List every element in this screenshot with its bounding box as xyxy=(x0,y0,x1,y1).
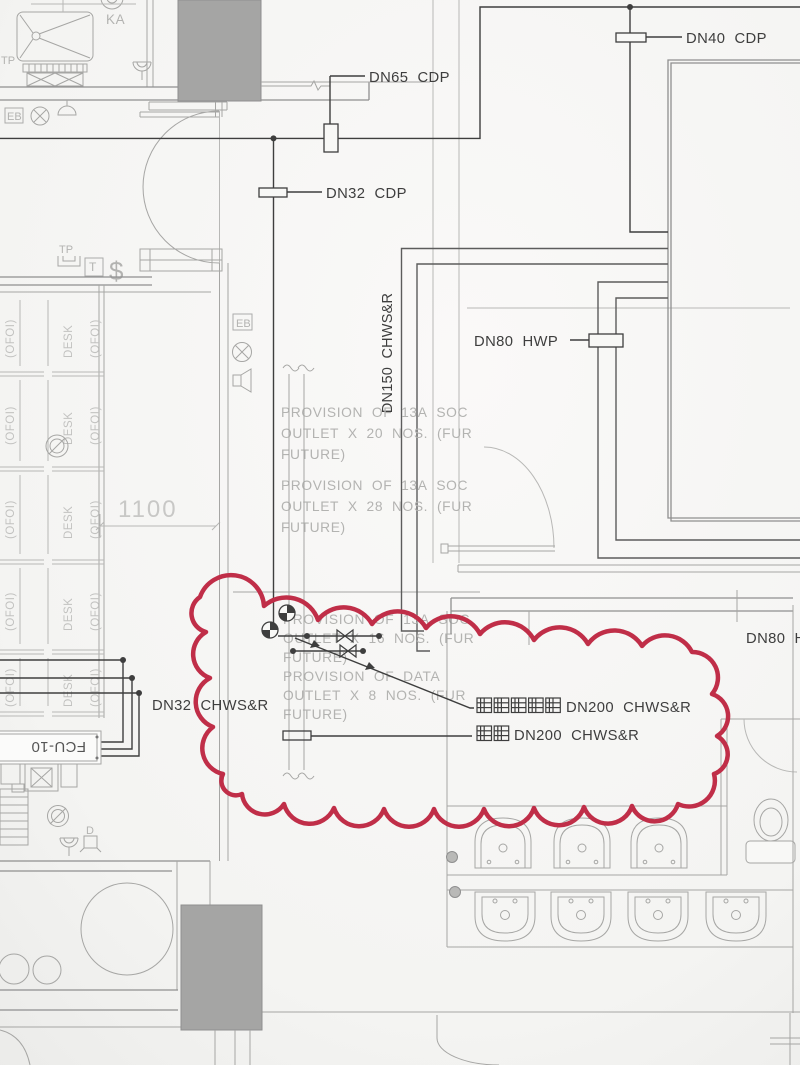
svg-text:FUTURE): FUTURE) xyxy=(281,520,346,535)
svg-text:PROVISION OF 13A SOC: PROVISION OF 13A SOC xyxy=(281,405,468,420)
svg-text:D: D xyxy=(86,825,94,837)
svg-text:DESK: DESK xyxy=(63,598,75,631)
svg-text:DESK: DESK xyxy=(63,412,75,445)
svg-text:DN200 CHWS&R: DN200 CHWS&R xyxy=(566,700,691,716)
svg-text:DN65 CDP: DN65 CDP xyxy=(369,70,450,86)
svg-text:(OFOI): (OFOI) xyxy=(5,500,17,539)
svg-text:(OFOI): (OFOI) xyxy=(90,319,102,358)
svg-text:(OFOI): (OFOI) xyxy=(90,406,102,445)
svg-text:KA: KA xyxy=(106,12,125,27)
svg-text:(OFOI): (OFOI) xyxy=(90,592,102,631)
svg-text:FUTURE): FUTURE) xyxy=(281,447,346,462)
svg-text:DN32 CHWS&R: DN32 CHWS&R xyxy=(152,698,269,714)
svg-text:OUTLET X 20 NOS. (FUR: OUTLET X 20 NOS. (FUR xyxy=(281,426,472,441)
svg-text:(OFOI): (OFOI) xyxy=(5,668,17,707)
svg-text:DN150 CHWS&R: DN150 CHWS&R xyxy=(380,293,396,413)
svg-text:FUTURE): FUTURE) xyxy=(283,707,348,722)
svg-text:DESK: DESK xyxy=(63,325,75,358)
svg-text:PROVISION OF DATA: PROVISION OF DATA xyxy=(283,669,441,684)
svg-text:(OFOI): (OFOI) xyxy=(90,668,102,707)
svg-text:PROVISION OF 13A SOC: PROVISION OF 13A SOC xyxy=(281,478,468,493)
svg-text:DESK: DESK xyxy=(63,506,75,539)
svg-text:EB: EB xyxy=(236,318,251,330)
svg-text:T: T xyxy=(89,260,97,274)
svg-text:1100: 1100 xyxy=(118,496,178,523)
svg-text:(OFOI): (OFOI) xyxy=(5,592,17,631)
svg-text:FCU-10: FCU-10 xyxy=(31,738,86,755)
svg-text:EB: EB xyxy=(7,111,22,123)
svg-text:DN40 CDP: DN40 CDP xyxy=(686,31,767,47)
svg-text:DN80 H: DN80 H xyxy=(746,631,800,647)
svg-text:DN32 CDP: DN32 CDP xyxy=(326,186,407,202)
svg-text:(OFOI): (OFOI) xyxy=(5,406,17,445)
svg-text:DN80 HWP: DN80 HWP xyxy=(474,334,558,350)
svg-text:TP: TP xyxy=(59,244,73,256)
svg-text:$: $ xyxy=(109,256,124,286)
svg-text:(OFOI): (OFOI) xyxy=(5,319,17,358)
svg-text:OUTLET X 28 NOS. (FUR: OUTLET X 28 NOS. (FUR xyxy=(281,499,472,514)
svg-text:TP: TP xyxy=(1,55,15,67)
svg-text:DN200 CHWS&R: DN200 CHWS&R xyxy=(514,728,639,744)
